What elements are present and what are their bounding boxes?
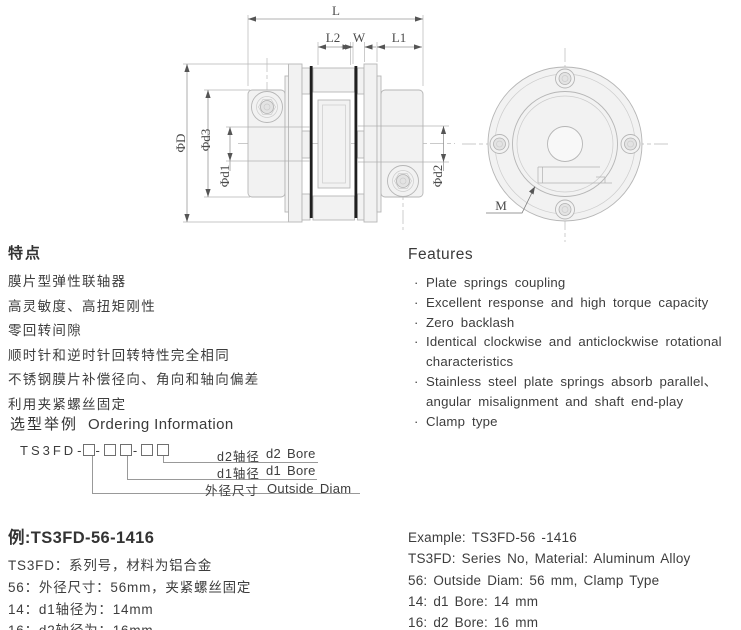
feature-item: ·Plate springs coupling xyxy=(426,273,741,293)
ordering-title-cn: 选型举例 xyxy=(10,416,78,433)
code-dash: - xyxy=(133,443,137,458)
feature-item-continuation: angular misalignment and shaft end-play xyxy=(426,392,741,412)
code-box-d1 xyxy=(120,444,132,456)
features-title-cn: 特点 xyxy=(8,242,398,263)
example-line: 16: d2 Bore: 16 mm xyxy=(408,612,741,630)
code-dash: - xyxy=(77,443,81,458)
spacer-rail-top xyxy=(313,68,355,92)
example-section-en: Example: TS3FD-56 -1416 TS3FD: Series No… xyxy=(408,527,741,630)
feature-text: characteristics xyxy=(426,354,513,369)
features-title-en: Features xyxy=(408,246,741,264)
dim-label-M: M xyxy=(495,198,507,213)
example-title-cn: 例:TS3FD-56-1416 xyxy=(8,524,251,548)
feature-item: 顺时针和逆时针回转特性完全相同 xyxy=(8,344,398,369)
code-box-d1 xyxy=(104,444,116,456)
dim-label-L2: L2 xyxy=(326,30,340,45)
label-outside-diam-cn: 外径尺寸 xyxy=(205,480,259,499)
left-tab-top xyxy=(302,68,310,94)
example-line: 14: d1 Bore: 14 mm xyxy=(408,591,741,612)
code-prefix: TS3FD xyxy=(20,443,76,458)
dim-label-phid2: Φd2 xyxy=(430,165,445,188)
feature-text: angular misalignment and shaft end-play xyxy=(426,394,683,409)
label-d2-en: d2 Bore xyxy=(266,446,316,461)
feature-text: Excellent response and high torque capac… xyxy=(426,295,708,310)
bullet-icon: · xyxy=(414,273,426,293)
bolt-right xyxy=(621,135,640,154)
feature-item: ·Zero backlash xyxy=(426,313,741,333)
bullet-icon: · xyxy=(414,332,426,352)
bullet-icon: · xyxy=(414,293,426,313)
feature-item: ·Clamp type xyxy=(426,412,741,432)
label-outside-diam-en: Outside Diam xyxy=(267,481,351,496)
code-box-d2 xyxy=(141,444,153,456)
bolt-top xyxy=(556,69,575,88)
ordering-code: TS3FD - - - xyxy=(20,443,169,457)
ordering-title: 选型举例Ordering Information xyxy=(10,413,234,434)
right-clamp-screw xyxy=(388,166,419,197)
technical-drawing: L L2 W L1 ΦD Φd3 Φd1 Φd2 xyxy=(0,0,741,250)
right-ring xyxy=(377,76,381,212)
feature-text: Stainless steel plate springs absorb par… xyxy=(426,374,717,389)
connector-d1 xyxy=(127,456,128,480)
catalog-page: L L2 W L1 ΦD Φd3 Φd1 Φd2 xyxy=(0,0,741,630)
bullet-icon: · xyxy=(414,372,426,392)
connector-outside-diam xyxy=(92,456,93,494)
example-line: 14：d1轴径为：14mm xyxy=(8,599,251,621)
bore-circle xyxy=(548,127,583,162)
diaphragm-left xyxy=(310,66,313,218)
bullet-icon: · xyxy=(414,412,426,432)
left-clamp-screw xyxy=(252,92,283,123)
features-section-cn: 特点 膜片型弹性联轴器 高灵敏度、高扭矩刚性 零回转间隙 顺时针和逆时针回转特性… xyxy=(8,242,398,417)
left-flange xyxy=(289,64,303,222)
bolt-bottom xyxy=(556,200,575,219)
example-section-cn: 例:TS3FD-56-1416 TS3FD：系列号，材料为铝合金 56：外径尺寸… xyxy=(8,524,251,630)
features-list-cn: 膜片型弹性联轴器 高灵敏度、高扭矩刚性 零回转间隙 顺时针和逆时针回转特性完全相… xyxy=(8,270,398,417)
spacer-rail-bottom xyxy=(313,196,355,220)
ordering-title-en: Ordering Information xyxy=(88,416,234,433)
code-dash: - xyxy=(96,443,100,458)
side-view: L L2 W L1 ΦD Φd3 Φd1 Φd2 xyxy=(173,3,455,230)
feature-item: 高灵敏度、高扭矩刚性 xyxy=(8,295,398,320)
dim-label-L: L xyxy=(332,3,340,18)
features-list-en: ·Plate springs coupling ·Excellent respo… xyxy=(408,273,741,431)
feature-text: Zero backlash xyxy=(426,315,514,330)
bullet-icon: · xyxy=(414,313,426,333)
label-d1-en: d1 Bore xyxy=(266,463,316,478)
feature-item-continuation: characteristics xyxy=(426,352,741,372)
right-tab-bottom xyxy=(358,194,365,220)
example-line: TS3FD: Series No, Material: Aluminum All… xyxy=(408,548,741,569)
right-flange xyxy=(364,64,377,222)
right-tab-mid xyxy=(358,131,365,158)
feature-item: 不锈钢膜片补偿径向、角向和轴向偏差 xyxy=(8,368,398,393)
left-tab-mid xyxy=(302,131,310,158)
feature-item: ·Stainless steel plate springs absorb pa… xyxy=(426,372,741,392)
code-box-d2 xyxy=(157,444,169,456)
feature-text: Plate springs coupling xyxy=(426,275,565,290)
feature-item: ·Excellent response and high torque capa… xyxy=(426,293,741,313)
dim-label-L1: L1 xyxy=(392,30,406,45)
feature-text: Identical clockwise and anticlockwise ro… xyxy=(426,334,722,349)
example-line: TS3FD：系列号，材料为铝合金 xyxy=(8,555,251,577)
features-section-en: Features ·Plate springs coupling ·Excell… xyxy=(408,246,741,431)
dim-label-W: W xyxy=(353,30,366,45)
example-line: 56: Outside Diam: 56 mm, Clamp Type xyxy=(408,570,741,591)
feature-text: Clamp type xyxy=(426,414,498,429)
example-line: Example: TS3FD-56 -1416 xyxy=(408,527,741,548)
code-box-outside-diam xyxy=(83,444,95,456)
feature-item: 零回转间隙 xyxy=(8,319,398,344)
feature-item: 膜片型弹性联轴器 xyxy=(8,270,398,295)
dim-label-phiD: ΦD xyxy=(173,134,188,153)
diaphragm-right xyxy=(355,66,358,218)
left-tab-bottom xyxy=(302,194,310,220)
feature-item: ·Identical clockwise and anticlockwise r… xyxy=(426,332,741,352)
dim-label-phid3: Φd3 xyxy=(198,129,213,152)
dim-label-phid1: Φd1 xyxy=(217,165,232,188)
example-list-cn: TS3FD：系列号，材料为铝合金 56：外径尺寸：56mm，夹紧螺丝固定 14：… xyxy=(8,555,251,630)
example-line: 16：d2轴径为：16mm xyxy=(8,620,251,630)
right-tab-top xyxy=(358,68,365,94)
bolt-left xyxy=(490,135,509,154)
example-line: 56：外径尺寸：56mm，夹紧螺丝固定 xyxy=(8,577,251,599)
front-view: M xyxy=(462,48,668,242)
